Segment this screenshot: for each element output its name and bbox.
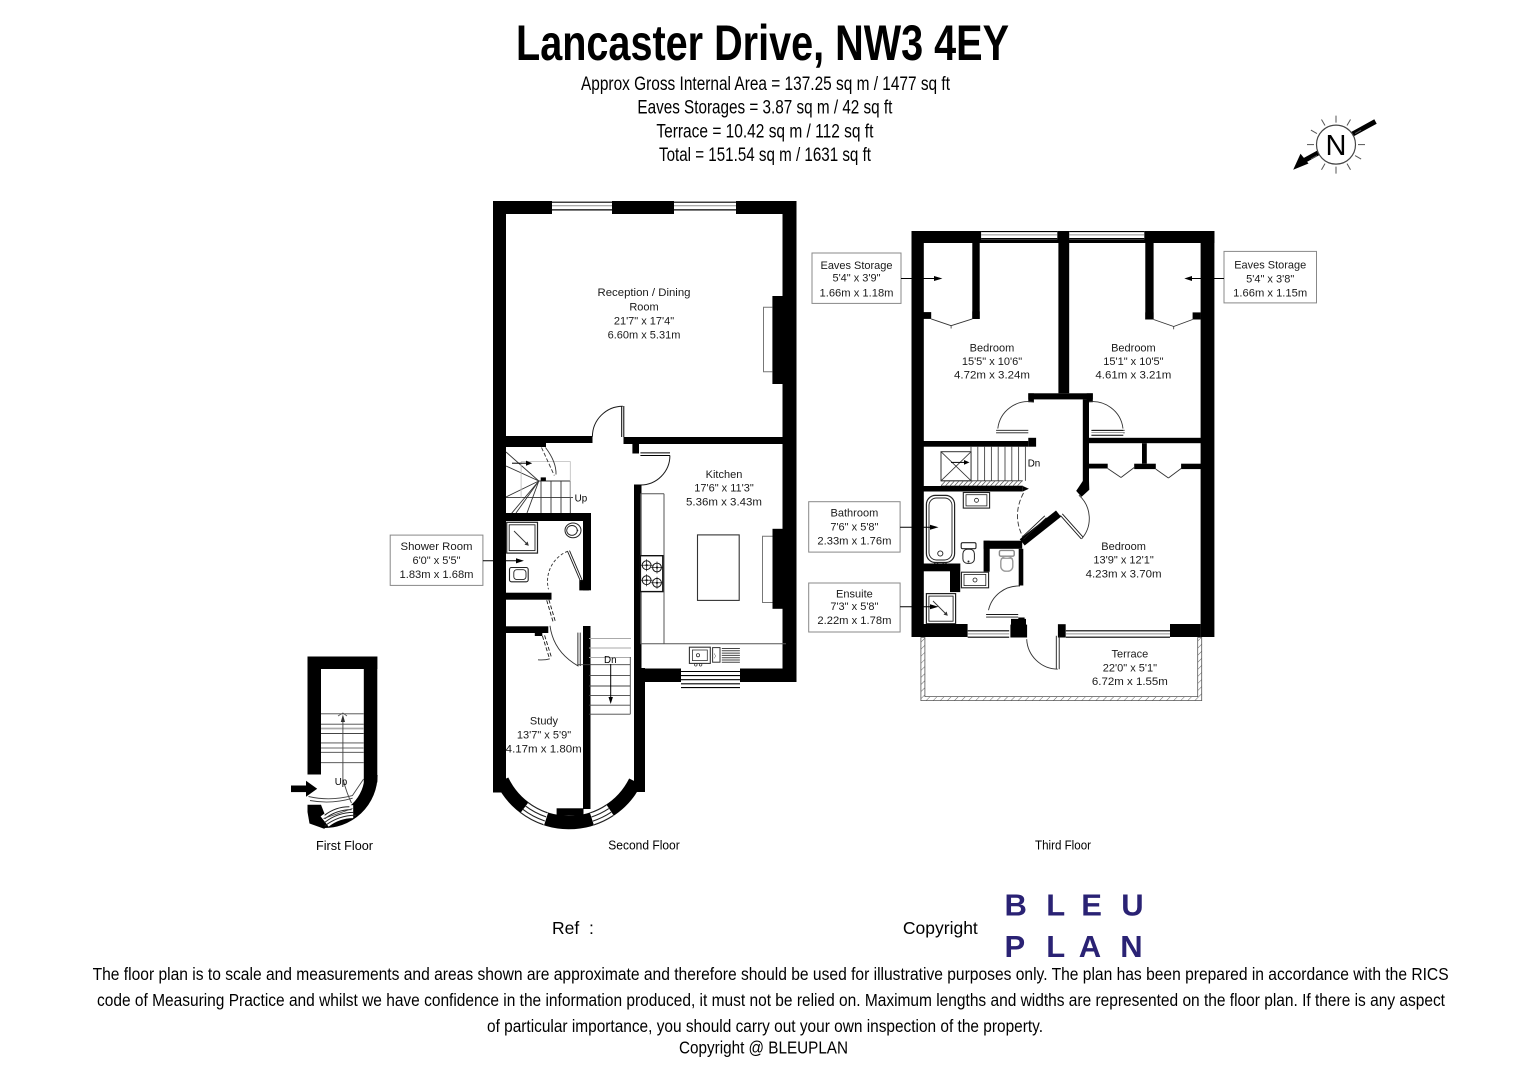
svg-text:Study: Study [530, 716, 559, 728]
svg-text:A: A [1079, 929, 1101, 964]
svg-text:4.17m x 1.80m: 4.17m x 1.80m [506, 744, 582, 756]
svg-text:Terrace: Terrace [1112, 649, 1149, 661]
svg-text:U: U [1121, 888, 1143, 923]
svg-text:2.33m x 1.76m: 2.33m x 1.76m [817, 535, 891, 547]
svg-text:First Floor: First Floor [316, 839, 373, 853]
svg-text:P: P [1005, 929, 1026, 964]
svg-text:Eaves Storage: Eaves Storage [821, 260, 893, 272]
svg-text:Third Floor: Third Floor [1035, 839, 1091, 853]
svg-text:B: B [1005, 888, 1027, 923]
svg-text:Up: Up [575, 494, 588, 505]
svg-text:code of Measuring Practice and: code of Measuring Practice and whilst we… [97, 990, 1445, 1010]
svg-text:Bedroom: Bedroom [970, 342, 1015, 354]
svg-text:Shower Room: Shower Room [401, 541, 473, 553]
svg-text:Kitchen: Kitchen [706, 469, 743, 481]
svg-text:The floor plan is to scale and: The floor plan is to scale and measureme… [93, 964, 1449, 984]
svg-text:Total = 151.54 sq m / 1631 sq: Total = 151.54 sq m / 1631 sq ft [659, 145, 872, 166]
svg-text:Dn: Dn [1028, 458, 1041, 469]
svg-text:of particular importance, you: of particular importance, you should car… [487, 1016, 1043, 1036]
svg-text:Bedroom: Bedroom [1101, 541, 1146, 553]
svg-text:5'4" x 3'9": 5'4" x 3'9" [832, 273, 880, 285]
svg-text:4.72m x 3.24m: 4.72m x 3.24m [954, 370, 1030, 382]
svg-text:6.72m x 1.55m: 6.72m x 1.55m [1092, 676, 1168, 688]
svg-text:1.83m x 1.68m: 1.83m x 1.68m [400, 569, 474, 581]
svg-text:5'4" x 3'8": 5'4" x 3'8" [1246, 273, 1294, 285]
svg-text:Bedroom: Bedroom [1111, 342, 1156, 354]
svg-text:Bathroom: Bathroom [831, 508, 879, 520]
svg-text:Ensuite: Ensuite [836, 588, 873, 600]
svg-text:15'5" x 10'6": 15'5" x 10'6" [962, 356, 1022, 368]
svg-text:Reception / Dining: Reception / Dining [598, 287, 691, 299]
svg-text:7'3" x 5'8": 7'3" x 5'8" [830, 601, 878, 613]
svg-text:4.23m x 3.70m: 4.23m x 3.70m [1086, 568, 1162, 580]
svg-text:L: L [1046, 929, 1065, 964]
svg-text:17'6" x 11'3": 17'6" x 11'3" [694, 483, 754, 495]
svg-text:N: N [1120, 929, 1142, 964]
svg-text:Approx Gross Internal Area = 1: Approx Gross Internal Area = 137.25 sq m… [581, 74, 951, 95]
svg-text:Terrace = 10.42 sq m / 112 sq: Terrace = 10.42 sq m / 112 sq ft [656, 121, 874, 142]
svg-text:7'6" x 5'8": 7'6" x 5'8" [830, 521, 878, 533]
svg-text:Up: Up [335, 777, 348, 788]
svg-text:L: L [1046, 888, 1065, 923]
svg-text:13'7" x 5'9": 13'7" x 5'9" [517, 730, 571, 742]
svg-text:Room: Room [629, 302, 658, 314]
svg-text:6'0" x 5'5": 6'0" x 5'5" [412, 555, 460, 567]
svg-text:〉: 〉 [714, 653, 720, 660]
svg-text:21'7" x 17'4": 21'7" x 17'4" [614, 316, 674, 328]
svg-text:4.61m x 3.21m: 4.61m x 3.21m [1095, 370, 1171, 382]
svg-text:22'0" x 5'1": 22'0" x 5'1" [1103, 662, 1157, 674]
svg-text:5.36m x 3.43m: 5.36m x 3.43m [686, 497, 762, 509]
svg-text:Ref :: Ref : [552, 918, 594, 938]
svg-text:13'9" x 12'1": 13'9" x 12'1" [1093, 555, 1153, 567]
svg-text:6.60m x 5.31m: 6.60m x 5.31m [608, 330, 681, 342]
svg-text:1.66m x 1.18m: 1.66m x 1.18m [820, 288, 894, 300]
svg-text:2.22m x 1.78m: 2.22m x 1.78m [817, 615, 891, 627]
svg-text:Eaves Storages = 3.87 sq m / 4: Eaves Storages = 3.87 sq m / 42 sq ft [637, 98, 893, 119]
svg-text:Lancaster Drive, NW3 4EY: Lancaster Drive, NW3 4EY [516, 15, 1009, 71]
svg-text:1.66m x 1.15m: 1.66m x 1.15m [1233, 287, 1307, 299]
svg-text:N: N [1326, 130, 1347, 162]
svg-text:Second Floor: Second Floor [608, 839, 680, 853]
svg-text:15'1" x 10'5": 15'1" x 10'5" [1103, 356, 1163, 368]
svg-text:Copyright @ BLEUPLAN: Copyright @ BLEUPLAN [679, 1037, 848, 1057]
svg-text:Eaves Storage: Eaves Storage [1234, 260, 1306, 272]
svg-text:E: E [1081, 888, 1102, 923]
svg-text:Copyright: Copyright [903, 918, 978, 938]
